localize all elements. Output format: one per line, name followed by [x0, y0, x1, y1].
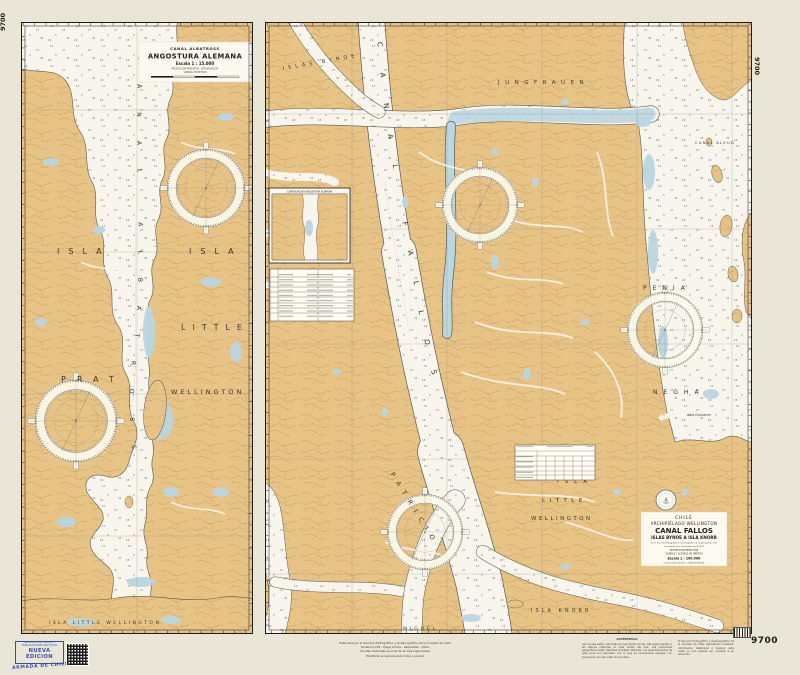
edition-stamp: DEPÓSITO DE CARTAS Y PUBLICACIONES NÁUTI… [15, 641, 64, 664]
warning-title: ADVERTENCIA [582, 638, 672, 642]
right-chart-map: CANAL FALLOS ISLAS BYNOE JUNGFRAUEN PENÍ… [265, 22, 752, 634]
label-little: LITTLE [181, 323, 249, 332]
inset-title: CONTINUACIÓN ANGOSTURA ALEMANA [287, 190, 332, 193]
label-isla-east: ISLA [189, 247, 243, 256]
chart-number-top-left: 9700 [0, 13, 7, 31]
label-penia: PENÍA [643, 285, 691, 292]
new-edition-label: NUEVA EDICION [16, 649, 63, 661]
left-title-region: CANAL ALBATROSS [170, 46, 220, 51]
title-name: CANAL FALLOS [655, 527, 713, 535]
nautical-chart-sheet: 1427 93518 [0, 0, 800, 675]
label-isla-knorr: ISLA KNORR [531, 608, 591, 614]
label-prat: PRAT [61, 375, 125, 384]
shoa-seal-icon: ⚓ [656, 490, 676, 510]
chart-number-bottom-right: 9700 [751, 636, 778, 646]
right-chart-panel: CANAL FALLOS ISLAS BYNOE JUNGFRAUEN PENÍ… [265, 22, 752, 638]
left-title-scale: Escala 1 : 15.000 [176, 61, 214, 66]
warning-notes: ADVERTENCIA Las sondas están reducidas a… [582, 638, 672, 659]
islet [125, 496, 133, 508]
label-canal-aleud: CANAL ALEUD [695, 140, 735, 145]
warning-text: Las sondas están reducidas al nivel medi… [582, 643, 672, 659]
inset-map: CONTINUACIÓN ANGOSTURA ALEMANA [269, 188, 350, 263]
label-jungfrauen: JUNGFRAUEN [497, 80, 589, 86]
chart-number-top-right: 9700 [753, 57, 761, 75]
title-note4: Latitud media 48°40' S - DATUM WGS-84 [664, 562, 706, 565]
title-region: ARCHIPIÉLAGO WELLINGTON [651, 521, 718, 526]
label-negha: NEGHA [653, 389, 705, 396]
islet [507, 600, 523, 608]
legend-table [270, 269, 354, 321]
left-title-name: ANGOSTURA ALEMANA [148, 53, 243, 61]
publication-block: Publicada por el Servicio Hidrográfico y… [300, 641, 490, 658]
left-chart-panel: CANAL ALBATROSS ISLA PRAT ISLA LITTLE WE… [21, 22, 253, 638]
title-note3: SONDAS Y ALTURAS EN METROS [665, 553, 703, 556]
title-attribution: Por el Servicio Hidrográfico y Oceanográ… [651, 542, 719, 545]
barcode [733, 627, 751, 638]
left-title-block: CANAL ALBATROSS ANGOSTURA ALEMANA Escala… [139, 42, 251, 82]
label-wellington: WELLINGTON [171, 388, 244, 396]
scale-bar [151, 76, 239, 78]
label-miguel: MIGUEL [403, 626, 438, 632]
title-scale: Escala 1 : 100.000 [668, 557, 701, 561]
title-subtitle: ISLAS BYNOE A ISLA KNORR [651, 535, 718, 540]
qr-code [66, 643, 89, 666]
svg-text:⚓: ⚓ [662, 497, 669, 506]
label-wellington: WELLINGTON [531, 516, 593, 522]
label-abra-dunraven: Abra Dunraven [686, 413, 711, 417]
tide-table [515, 445, 595, 480]
feedback-note: El Servicio Hidrográfico y Oceanográfico… [678, 640, 734, 656]
label-isla-little-wellington-bottom: ISLA LITTLE WELLINGTON [49, 620, 161, 626]
left-title-note2: SONDAS EN METROS [184, 71, 208, 74]
label-isla-west: ISLA [57, 247, 111, 256]
publication-line4: Prohibida la reproducción total o parcia… [300, 654, 490, 658]
title-note1: Levantamientos efectuados hasta 1997 [664, 545, 704, 548]
left-chart-map: CANAL ALBATROSS ISLA PRAT ISLA LITTLE WE… [21, 22, 253, 634]
label-little: LITTLE [542, 498, 587, 504]
